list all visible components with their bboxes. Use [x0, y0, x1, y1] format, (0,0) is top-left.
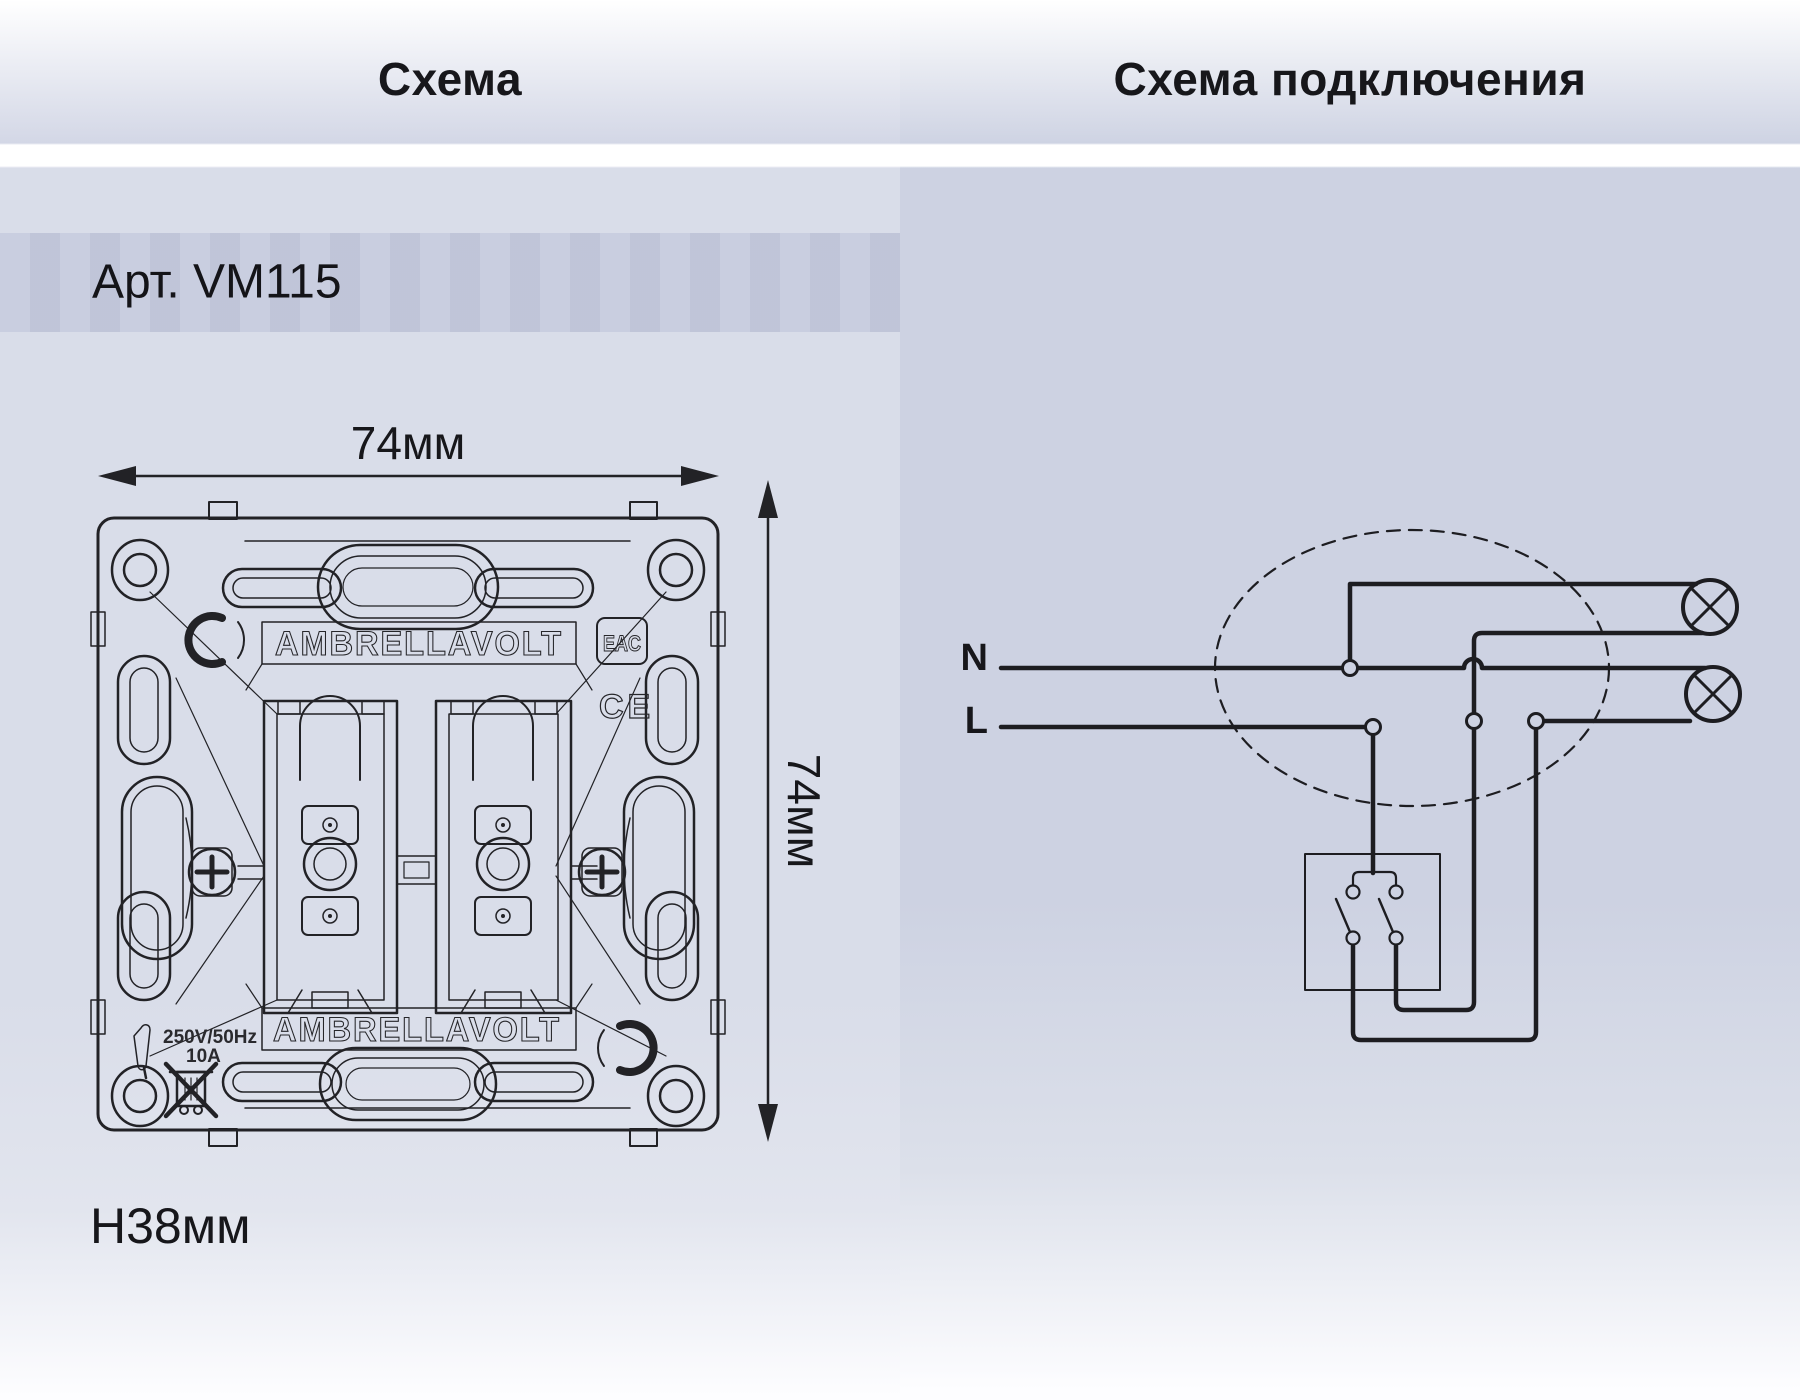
article-number: Арт. VM115 [92, 254, 342, 309]
right-panel [900, 0, 1800, 1400]
depth-dimension-label: H38мм [90, 1197, 250, 1255]
left-panel [0, 0, 900, 1400]
product-diagram-page: Схема Схема подключения Арт. VM115 H38мм [0, 0, 1800, 1400]
article-band: Арт. VM115 [0, 233, 900, 332]
right-panel-title: Схема подключения [900, 52, 1800, 106]
left-panel-title: Схема [0, 52, 900, 106]
